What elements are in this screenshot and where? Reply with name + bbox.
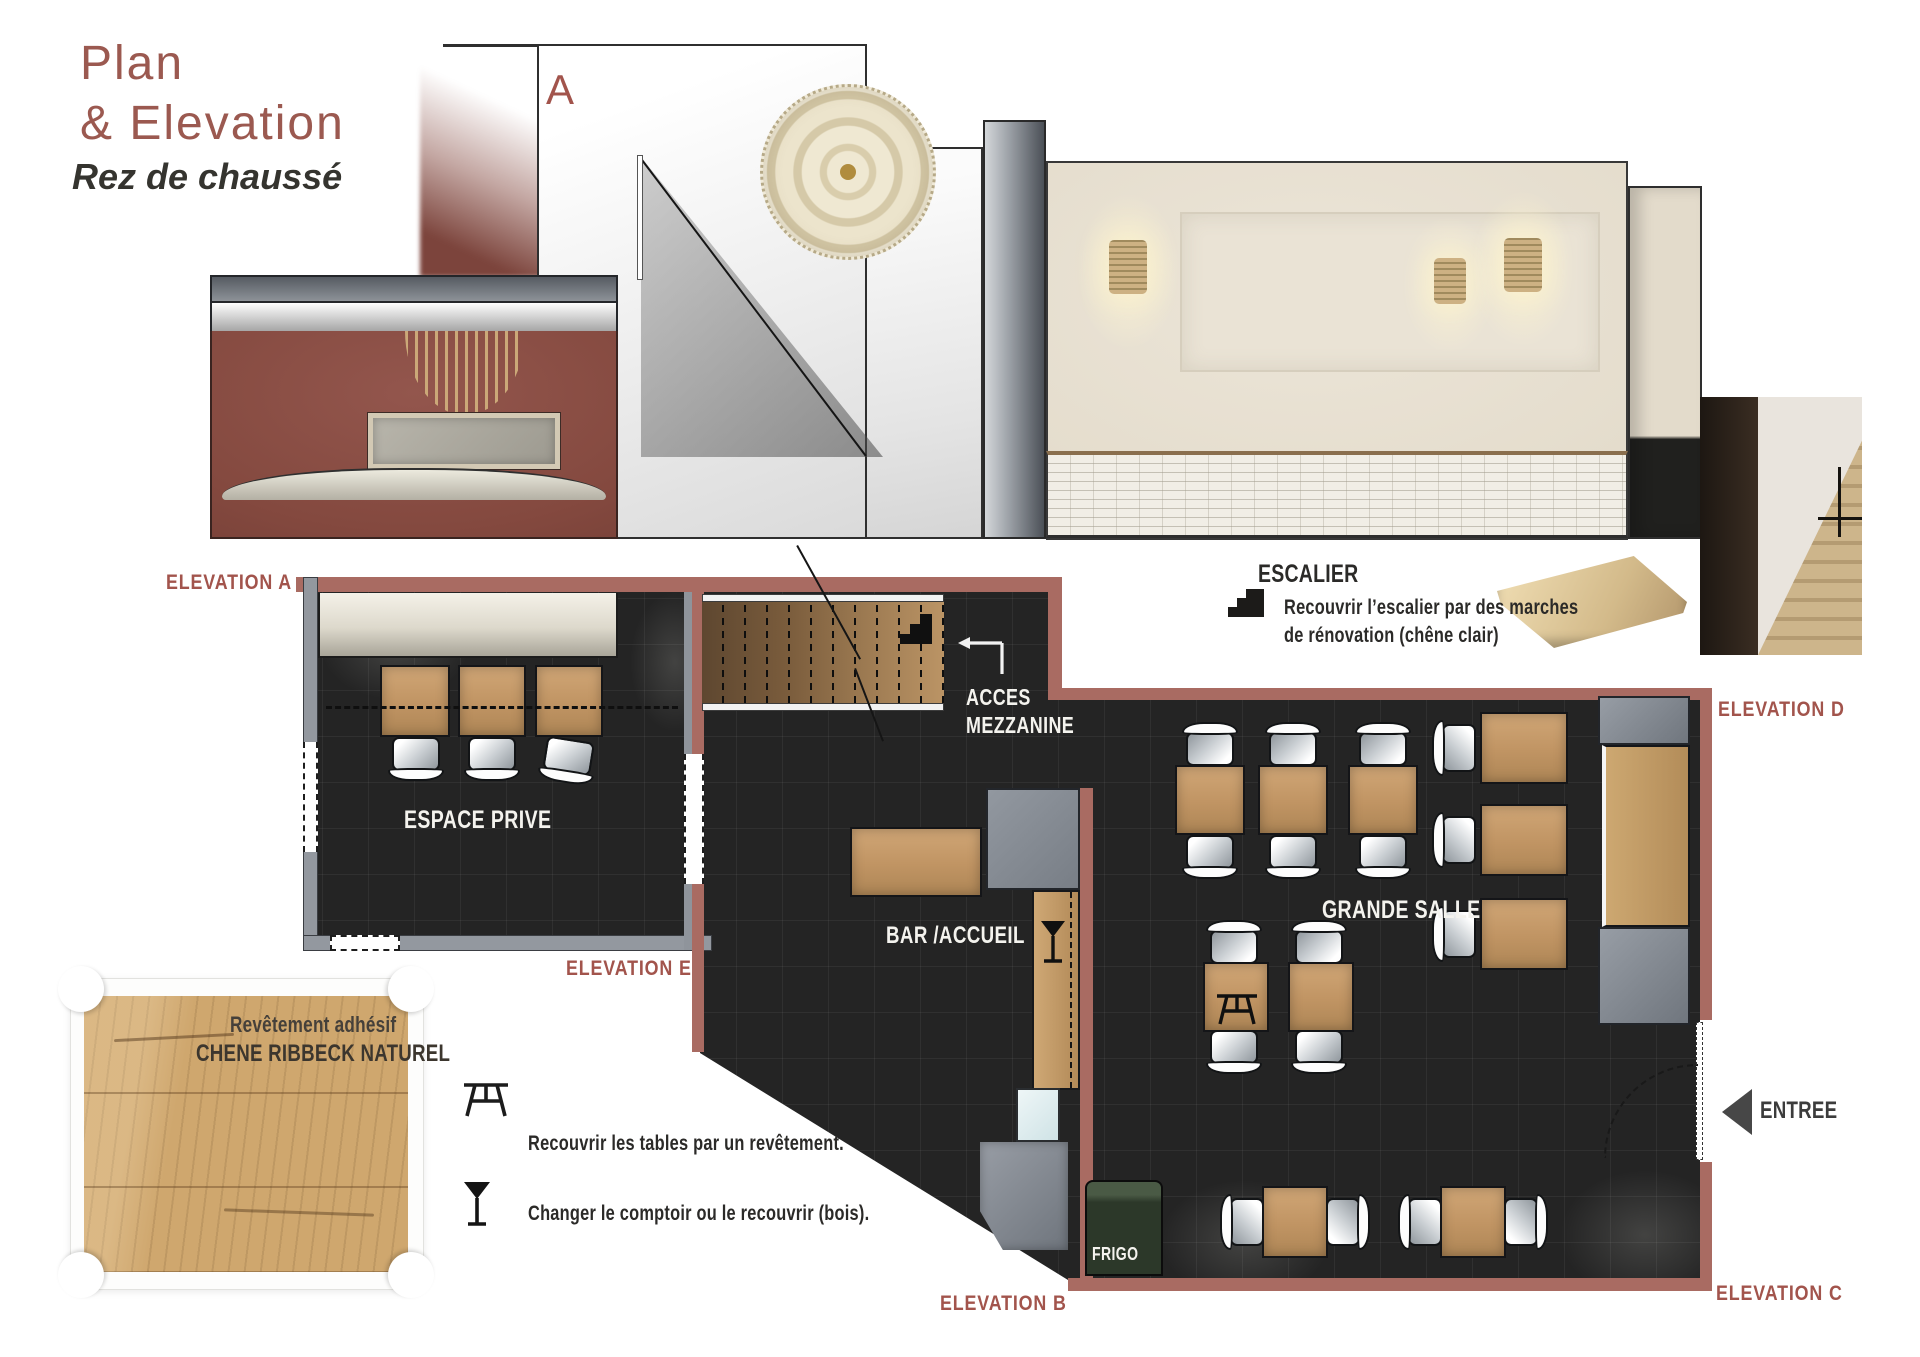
- table: [1480, 898, 1568, 970]
- page-curl: [58, 966, 104, 1012]
- table: [1288, 962, 1354, 1032]
- label-elevation-c: ELEVATION C: [1716, 1282, 1843, 1306]
- wall-sconce-icon: [1109, 240, 1147, 294]
- photo-railing: [1838, 467, 1841, 537]
- label-frigo: FRIGO: [1092, 1244, 1138, 1265]
- martini-glass-icon: [1040, 920, 1066, 966]
- stairs-icon: [1228, 585, 1264, 617]
- label-elevation-e: ELEVATION E: [566, 957, 692, 981]
- chair: [1355, 722, 1411, 768]
- label-elevation-b: ELEVATION B: [940, 1292, 1067, 1316]
- framed-panel: [368, 413, 560, 469]
- wall-south: [1068, 1278, 1712, 1291]
- glass-panel: [1016, 1088, 1060, 1142]
- brick-wainscot: [1046, 451, 1628, 538]
- label-entree: ENTREE: [1760, 1097, 1837, 1125]
- entree-arrow-icon: [1722, 1089, 1752, 1135]
- table: [1480, 712, 1568, 784]
- photo-stairs: [1758, 427, 1862, 655]
- wood-grain: [224, 1208, 374, 1216]
- page-title-line1: Plan: [80, 36, 184, 91]
- stair-wall-band: [983, 120, 1046, 539]
- picnic-table-icon: [458, 1076, 514, 1120]
- chair: [1265, 833, 1321, 879]
- chair: [1502, 1194, 1548, 1250]
- door-opening: [684, 754, 704, 884]
- table: [1258, 765, 1328, 835]
- sheet: Plan & Elevation Rez de chaussé A: [0, 0, 1920, 1357]
- chair: [1206, 1028, 1262, 1074]
- wall-east: [1700, 688, 1712, 1291]
- stair-edge: [702, 703, 944, 711]
- banquette: [318, 593, 618, 658]
- chair: [1291, 1028, 1347, 1074]
- photo-railing: [1818, 517, 1862, 520]
- chandelier-center: [840, 164, 856, 180]
- page-subtitle: Rez de chaussé: [72, 156, 342, 198]
- table: [458, 665, 526, 737]
- wall-cabinet: [1598, 927, 1690, 1025]
- table: [1348, 765, 1418, 835]
- wall-recessed-panel: [1180, 212, 1600, 372]
- picnic-table-icon: [1212, 988, 1262, 1028]
- bar-island-table: [850, 827, 982, 897]
- wall-step: [1048, 577, 1062, 700]
- page-curl: [58, 1252, 104, 1298]
- label-elevation-a: ELEVATION A: [166, 571, 292, 595]
- stair-rail-post: [637, 155, 643, 280]
- arrow-left-icon: [956, 636, 1006, 678]
- table: [380, 665, 450, 737]
- room-label-bar-accueil: BAR /ACCUEIL: [886, 922, 1025, 950]
- chair: [464, 735, 520, 781]
- table: [1262, 1186, 1328, 1258]
- martini-glass-icon: [462, 1180, 492, 1230]
- chair: [1398, 1194, 1444, 1250]
- sample-label-line2: CHENE RIBBECK NATUREL: [196, 1040, 450, 1068]
- table: [535, 665, 603, 737]
- window-opening: [303, 742, 318, 852]
- wall-sconce-icon: [1504, 238, 1542, 292]
- table: [1440, 1186, 1506, 1258]
- fridge: FRIGO: [1085, 1180, 1163, 1276]
- chair: [1291, 920, 1347, 966]
- label-elevation-d: ELEVATION D: [1718, 698, 1845, 722]
- red-wall-gray-cap: [210, 275, 618, 303]
- stairs-icon: [900, 608, 942, 644]
- stair-note-heading: ESCALIER: [1258, 560, 1358, 589]
- stair-note-line1: Recouvrir l’escalier par des marches: [1284, 596, 1578, 620]
- chair: [1206, 920, 1262, 966]
- chair: [1324, 1194, 1370, 1250]
- red-wall-light-band: [210, 303, 618, 331]
- chair: [537, 733, 600, 787]
- room-label-espace-prive: ESPACE PRIVE: [404, 806, 551, 835]
- wall-sconce-icon: [1434, 258, 1466, 304]
- chair: [1355, 833, 1411, 879]
- window-opening: [330, 935, 400, 951]
- chair: [1432, 812, 1478, 868]
- chair: [1220, 1194, 1266, 1250]
- counter-block: [986, 788, 1080, 890]
- wall-north: [296, 577, 1062, 592]
- room-label-grande-salle: GRANDE SALLE: [1322, 896, 1481, 925]
- table: [1480, 804, 1568, 876]
- chair: [1265, 722, 1321, 768]
- chair: [1182, 722, 1238, 768]
- chair: [1182, 833, 1238, 879]
- wall-bench: [1602, 745, 1690, 927]
- chair: [388, 735, 444, 781]
- note-comptoir: Changer le comptoir ou le recouvrir (boi…: [528, 1202, 869, 1226]
- label-acces: ACCES: [966, 684, 1031, 711]
- stair-note-line2: de rénovation (chêne clair): [1284, 624, 1499, 648]
- page-curl: [388, 1252, 434, 1298]
- page-title-line2: & Elevation: [80, 96, 345, 151]
- chair: [1432, 720, 1478, 776]
- page-curl: [388, 966, 434, 1012]
- plank-seam: [84, 1186, 408, 1188]
- label-mezzanine: MEZZANINE: [966, 712, 1074, 739]
- plank-seam: [84, 1092, 408, 1094]
- table: [1175, 765, 1245, 835]
- staircase-photo: [1700, 397, 1862, 655]
- photo-dark-wall: [1700, 397, 1758, 655]
- sample-label-line1: Revêtement adhésif: [230, 1012, 396, 1038]
- wall-cabinet: [1598, 696, 1690, 745]
- banquette-dashed-line: [326, 706, 678, 709]
- note-tables: Recouvrir les tables par un revêtement.: [528, 1132, 844, 1156]
- section-marker-a: A: [546, 66, 574, 114]
- side-wall-panel: [1628, 186, 1702, 539]
- bar-counter-dashed-line: [1070, 892, 1072, 1088]
